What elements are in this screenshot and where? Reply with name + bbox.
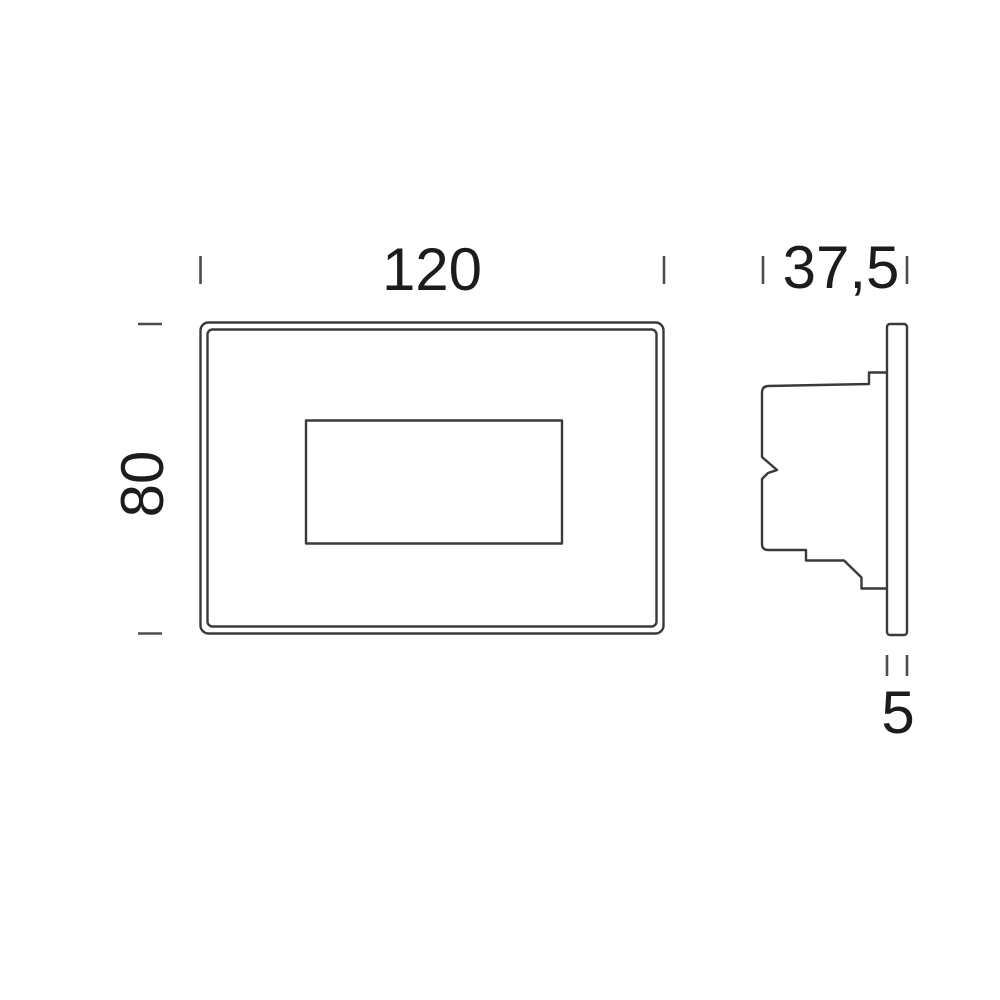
dimension-depth: 37,5 (763, 234, 907, 301)
faceplate-edge-outline (887, 324, 907, 635)
front-view (201, 323, 664, 634)
faceplate-outer-outline (201, 323, 664, 634)
recessed-body-profile (762, 373, 887, 589)
dimension-height: 80 (109, 324, 176, 634)
dimension-width: 120 (201, 236, 665, 303)
technical-dimension-drawing: 120 80 37,5 5 (0, 0, 1000, 1000)
depth-dimension-label: 37,5 (783, 234, 900, 301)
lamp-window-outline (306, 421, 562, 544)
width-dimension-label: 120 (382, 236, 482, 303)
height-dimension-label: 80 (109, 451, 176, 518)
faceplate-inner-outline (208, 330, 657, 627)
side-view (762, 324, 907, 635)
dimension-thickness: 5 (881, 655, 914, 746)
thickness-dimension-label: 5 (881, 679, 914, 746)
drawing-canvas: 120 80 37,5 5 (0, 0, 1000, 1000)
